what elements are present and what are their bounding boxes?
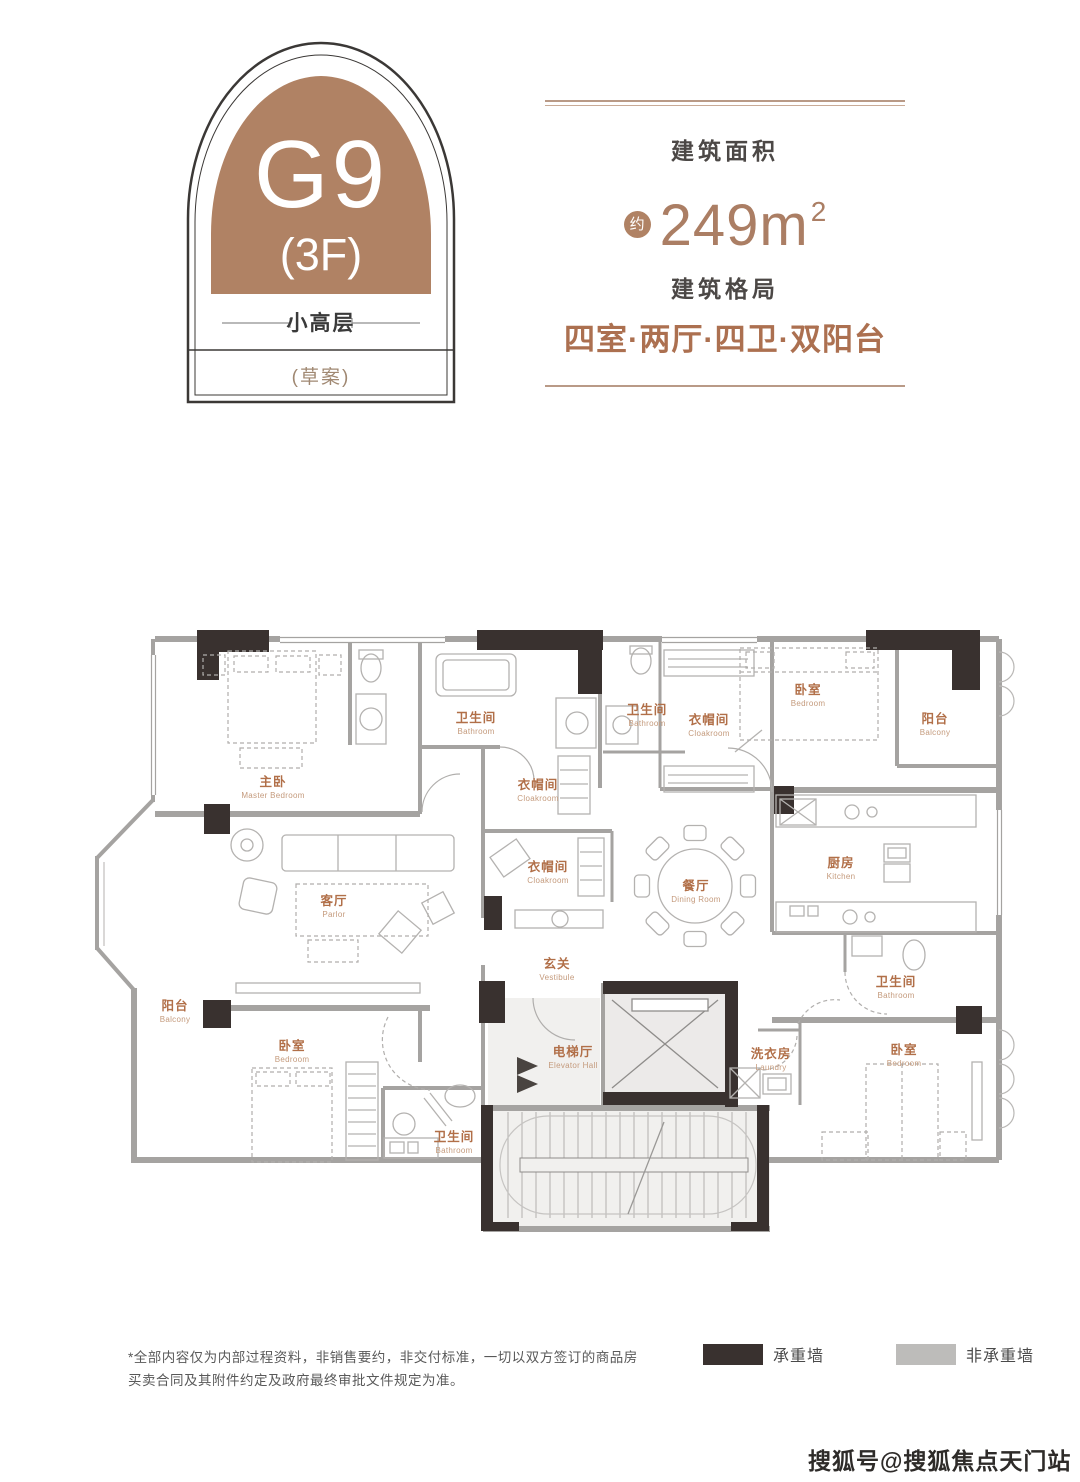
room-label-laundry: 洗衣房Laundry [751,1046,792,1072]
approx-badge: 约 [624,211,651,238]
room-label-bedroom-bottom-left: 卧室Bedroom [275,1038,310,1064]
room-label-parlor: 客厅Parlor [319,893,347,919]
info-bottom-rule [545,385,905,387]
room-label-bathroom-bottom-left: 卫生间Bathroom [434,1129,475,1155]
svg-text:卫生间: 卫生间 [456,710,497,725]
svg-text:Parlor: Parlor [322,910,345,919]
room-label-elevator-hall: 电梯厅Elevator Hall [548,1044,597,1070]
room-label-master-bedroom: 主卧Master Bedroom [241,774,304,800]
room-label-bedroom-top-right: 卧室Bedroom [791,682,826,708]
svg-text:Bathroom: Bathroom [628,719,665,728]
svg-text:Kitchen: Kitchen [827,872,856,881]
layout-label: 建筑格局 [545,270,905,304]
svg-text:Balcony: Balcony [160,1015,191,1024]
unit-info: 建筑面积 约249m2 建筑格局 四室·两厅·四卫·双阳台 [545,100,905,387]
room-label-bedroom-bottom-right: 卧室Bedroom [887,1042,922,1068]
svg-text:阳台: 阳台 [161,998,188,1013]
room-label-bathroom-top: 卫生间Bathroom [627,702,668,728]
svg-text:洗衣房: 洗衣房 [751,1046,792,1061]
svg-text:Bathroom: Bathroom [877,991,914,1000]
svg-text:衣帽间: 衣帽间 [518,777,559,792]
non-bearing-wall-label: 非承重墙 [966,1342,1034,1366]
svg-text:卧室: 卧室 [794,682,821,697]
area-value: 249m [660,193,809,258]
svg-text:电梯厅: 电梯厅 [553,1044,594,1059]
svg-text:卫生间: 卫生间 [434,1129,475,1144]
room-label-balcony-top-right: 阳台Balcony [920,711,951,737]
svg-text:卫生间: 卫生间 [876,974,917,989]
area-value-row: 约249m2 [545,176,905,248]
svg-text:卫生间: 卫生间 [627,702,668,717]
page: G9 (3F) 小高层 (草案) 建筑面积 约249m2 建筑格局 四室·两厅·… [0,0,1080,1482]
room-label-bathroom-right: 卫生间Bathroom [876,974,917,1000]
room-label-balcony-left: 阳台Balcony [160,998,191,1024]
area-label: 建筑面积 [545,132,905,166]
area-sup: 2 [811,196,827,227]
room-label-vestibule: 玄关Vestibule [539,956,574,982]
svg-text:衣帽间: 衣帽间 [689,712,730,727]
room-label-cloakroom-b: 衣帽间Cloakroom [688,712,729,738]
svg-text:Bedroom: Bedroom [887,1059,922,1068]
svg-text:衣帽间: 衣帽间 [528,859,569,874]
floorplan-svg: 主卧Master Bedroom 卫生间Bathroom 衣帽间Cloakroo… [0,615,1080,1245]
svg-text:Laundry: Laundry [755,1063,786,1072]
svg-text:Bedroom: Bedroom [791,699,826,708]
svg-text:Cloakroom: Cloakroom [527,876,568,885]
svg-text:Master Bedroom: Master Bedroom [241,791,304,800]
room-label-cloakroom-c: 衣帽间Cloakroom [527,859,568,885]
svg-text:Dining Room: Dining Room [671,895,721,904]
bearing-wall-swatch [703,1344,763,1365]
unit-badge: G9 (3F) 小高层 (草案) [175,25,470,410]
svg-text:Bathroom: Bathroom [457,727,494,736]
svg-text:Bathroom: Bathroom [435,1146,472,1155]
svg-text:Elevator Hall: Elevator Hall [548,1061,597,1070]
info-top-rule [545,100,905,106]
svg-text:Cloakroom: Cloakroom [517,794,558,803]
bearing-wall-label: 承重墙 [773,1342,824,1366]
svg-text:客厅: 客厅 [319,893,347,908]
svg-text:Balcony: Balcony [920,728,951,737]
layout-value: 四室·两厅·四卫·双阳台 [545,314,905,359]
svg-text:Bedroom: Bedroom [275,1055,310,1064]
room-label-bathroom-master: 卫生间Bathroom [456,710,497,736]
disclaimer-text: *全部内容仅为内部过程资料，非销售要约，非交付标准，一切以双方签订的商品房买卖合… [128,1347,638,1393]
draft-note: (草案) [292,366,351,388]
unit-code: G9 [254,121,388,228]
svg-text:卧室: 卧室 [278,1038,305,1053]
room-label-kitchen: 厨房Kitchen [827,855,856,881]
svg-text:阳台: 阳台 [921,711,948,726]
building-type: 小高层 [287,311,356,335]
door-arc-bedroom-bl [382,1017,430,1090]
svg-text:主卧: 主卧 [259,774,286,789]
svg-text:Cloakroom: Cloakroom [688,729,729,738]
watermark: 搜狐号@搜狐焦点天门站 [808,1442,1071,1476]
wall-legend: 承重墙 非承重墙 [703,1342,1034,1366]
svg-text:餐厅: 餐厅 [681,878,709,893]
svg-text:玄关: 玄关 [543,956,570,971]
room-label-cloakroom-a: 衣帽间Cloakroom [517,777,558,803]
svg-text:厨房: 厨房 [827,855,854,870]
room-label-dining-room: 餐厅Dining Room [671,878,721,904]
non-bearing-wall-swatch [896,1344,956,1365]
svg-text:Vestibule: Vestibule [539,973,574,982]
unit-floor: (3F) [280,229,363,280]
svg-text:卧室: 卧室 [890,1042,917,1057]
